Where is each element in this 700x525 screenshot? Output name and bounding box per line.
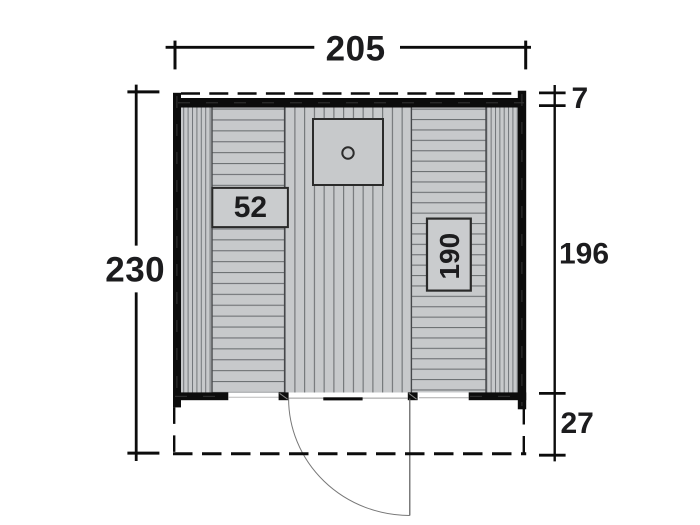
svg-text:190: 190 <box>434 233 465 280</box>
svg-text:205: 205 <box>326 29 386 68</box>
svg-text:7: 7 <box>572 82 589 115</box>
svg-text:27: 27 <box>561 407 594 440</box>
svg-text:52: 52 <box>234 191 267 224</box>
svg-text:196: 196 <box>559 238 609 271</box>
svg-text:230: 230 <box>105 251 165 290</box>
